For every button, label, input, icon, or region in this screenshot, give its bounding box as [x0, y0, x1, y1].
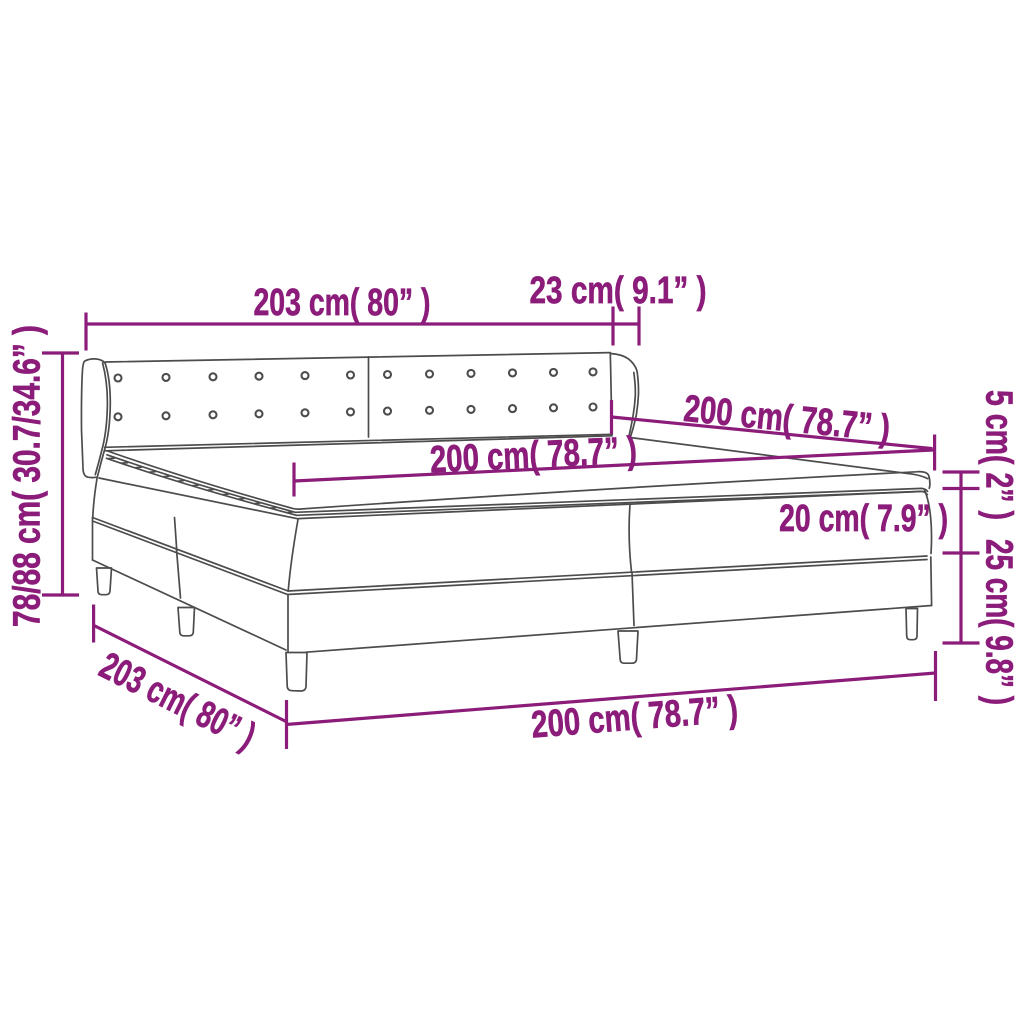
svg-text:25 cm( 9.8” ): 25 cm( 9.8” ): [978, 539, 1020, 705]
svg-text:78/88 cm( 30.7/34.6” ): 78/88 cm( 30.7/34.6” ): [7, 325, 49, 627]
svg-text:23 cm( 9.1” ): 23 cm( 9.1” ): [530, 270, 707, 312]
svg-text:5 cm( 2” ): 5 cm( 2” ): [978, 390, 1020, 520]
svg-text:203 cm( 80” ): 203 cm( 80” ): [254, 282, 431, 324]
svg-text:20 cm( 7.9” ): 20 cm( 7.9” ): [779, 498, 948, 540]
